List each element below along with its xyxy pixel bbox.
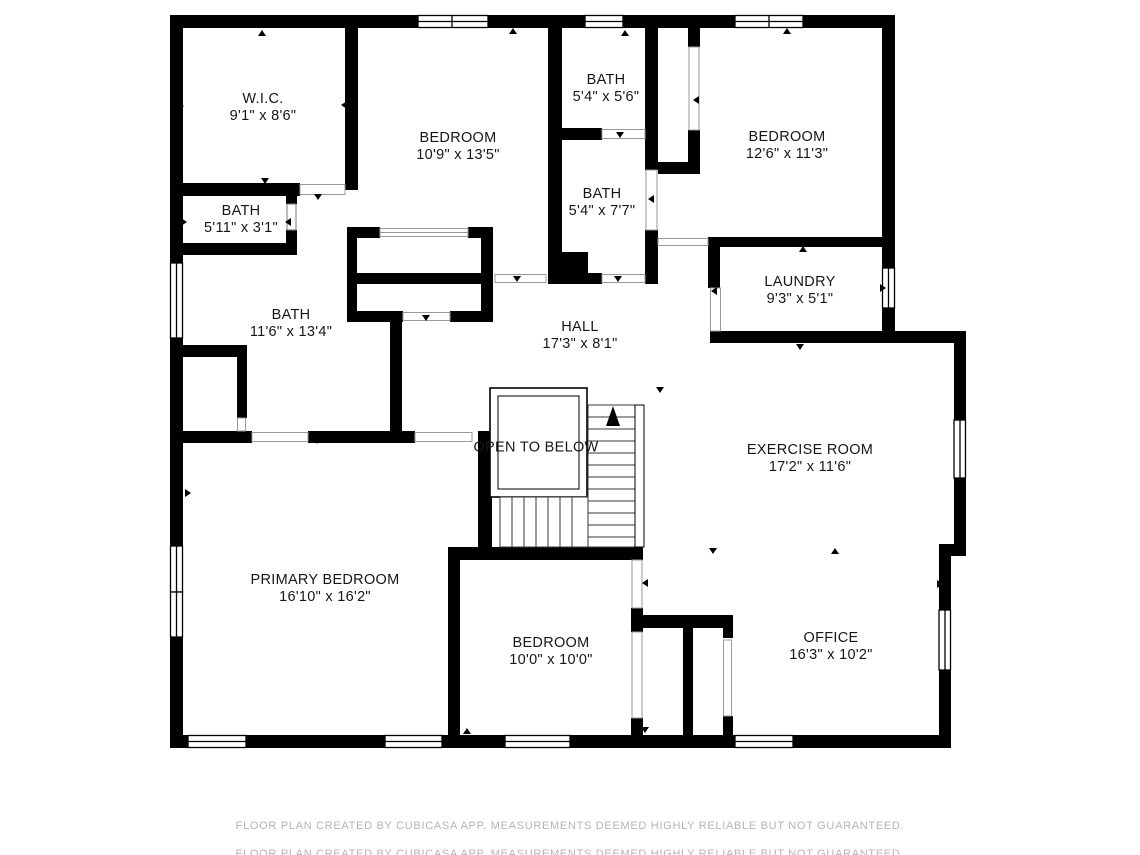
window: [505, 736, 570, 748]
room-name: BEDROOM: [416, 130, 499, 147]
room-label-office: OFFICE 16'3" x 10'2": [789, 630, 872, 664]
room-name: HALL: [542, 319, 617, 336]
room-name: BATH: [569, 186, 636, 203]
floor-plan-canvas: W.I.C. 9'1" x 8'6" BEDROOM 10'9" x 13'5"…: [0, 0, 1140, 855]
room-label-open-to-below: OPEN TO BELOW: [473, 440, 598, 457]
window: [418, 16, 488, 28]
window: [954, 420, 966, 478]
room-name: W.I.C.: [230, 91, 297, 108]
room-name: BEDROOM: [746, 129, 828, 146]
room-name: PRIMARY BEDROOM: [251, 572, 400, 589]
room-label-bedroom-top: BEDROOM 10'9" x 13'5": [416, 130, 499, 164]
room-dims: 10'0" x 10'0": [509, 652, 592, 669]
window: [735, 16, 803, 28]
window: [188, 736, 246, 748]
room-label-bath-mid: BATH 5'4" x 7'7": [569, 186, 636, 220]
room-dims: 16'10" x 16'2": [251, 589, 400, 606]
room-name: BATH: [573, 72, 640, 89]
room-dims: 10'9" x 13'5": [416, 147, 499, 164]
room-label-bedroom-bottom: BEDROOM 10'0" x 10'0": [509, 635, 592, 669]
window: [171, 546, 183, 592]
room-label-hall: HALL 17'3" x 8'1": [542, 319, 617, 353]
room-label-bedroom-right: BEDROOM 12'6" x 11'3": [746, 129, 828, 163]
floor-plan-drawing: [0, 0, 1140, 855]
room-label-laundry: LAUNDRY 9'3" x 5'1": [764, 274, 835, 308]
room-label-bath-top: BATH 5'4" x 5'6": [573, 72, 640, 106]
room-name: BATH: [204, 203, 278, 220]
room-dims: 5'4" x 7'7": [569, 203, 636, 220]
room-dims: 11'6" x 13'4": [250, 324, 332, 341]
window: [171, 592, 183, 637]
shower-fixture: [287, 204, 296, 230]
room-dims: 9'3" x 5'1": [764, 291, 835, 308]
room-dims: 12'6" x 11'3": [746, 146, 828, 163]
window: [735, 736, 793, 748]
room-name: LAUNDRY: [764, 274, 835, 291]
room-dims: 5'11" x 3'1": [204, 220, 278, 237]
window: [385, 736, 442, 748]
room-label-primary-bedroom: PRIMARY BEDROOM 16'10" x 16'2": [251, 572, 400, 606]
room-dims: 5'4" x 5'6": [573, 89, 640, 106]
window: [585, 16, 623, 28]
room-name: OPEN TO BELOW: [473, 440, 598, 457]
room-name: EXERCISE ROOM: [747, 442, 873, 459]
window: [171, 263, 183, 338]
window: [939, 610, 951, 670]
footer-disclaimer: FLOOR PLAN CREATED BY CUBICASA APP. MEAS…: [0, 820, 1140, 832]
room-name: OFFICE: [789, 630, 872, 647]
room-dims: 16'3" x 10'2": [789, 647, 872, 664]
room-label-bath-large: BATH 11'6" x 13'4": [250, 307, 332, 341]
room-label-bath-small: BATH 5'11" x 3'1": [204, 203, 278, 237]
footer-disclaimer-clipped: FLOOR PLAN CREATED BY CUBICASA APP. MEAS…: [0, 848, 1140, 855]
room-label-exercise-room: EXERCISE ROOM 17'2" x 11'6": [747, 442, 873, 476]
room-dims: 17'2" x 11'6": [747, 459, 873, 476]
room-dims: 9'1" x 8'6": [230, 108, 297, 125]
room-label-wic: W.I.C. 9'1" x 8'6": [230, 91, 297, 125]
room-name: BEDROOM: [509, 635, 592, 652]
room-dims: 17'3" x 8'1": [542, 336, 617, 353]
room-name: BATH: [250, 307, 332, 324]
